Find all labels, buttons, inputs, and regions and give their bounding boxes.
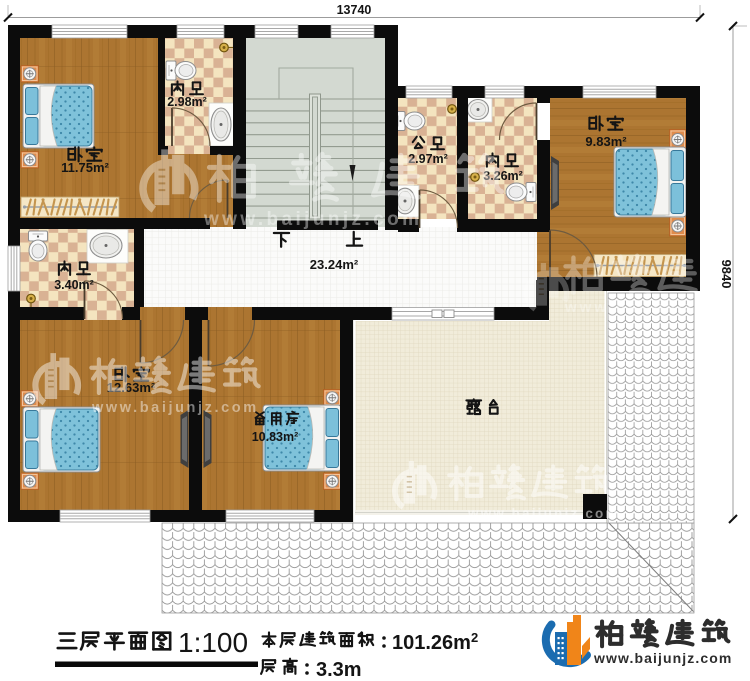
svg-text:10.83m²: 10.83m² <box>252 430 299 444</box>
svg-text:101.26m2: 101.26m2 <box>392 630 478 654</box>
svg-text:www.baijunjz.com: www.baijunjz.com <box>203 209 422 230</box>
svg-text:9840: 9840 <box>719 260 734 289</box>
svg-text:www.baijunjz.com: www.baijunjz.com <box>564 299 742 316</box>
svg-text:23.24m²: 23.24m² <box>310 257 359 272</box>
svg-text:www.baijunjz.com: www.baijunjz.com <box>91 400 259 416</box>
svg-text:www.baijunjz.com: www.baijunjz.com <box>467 506 620 521</box>
svg-text:www.baijunjz.com: www.baijunjz.com <box>593 650 732 666</box>
svg-text:3.40m²: 3.40m² <box>54 278 94 292</box>
svg-text:3.3m: 3.3m <box>316 659 362 681</box>
svg-text:13740: 13740 <box>337 3 372 17</box>
svg-text:2.98m²: 2.98m² <box>167 95 207 109</box>
svg-text:9.83m²: 9.83m² <box>585 134 627 149</box>
svg-text:11.75m²: 11.75m² <box>61 160 109 175</box>
svg-text:1:100: 1:100 <box>178 627 248 658</box>
